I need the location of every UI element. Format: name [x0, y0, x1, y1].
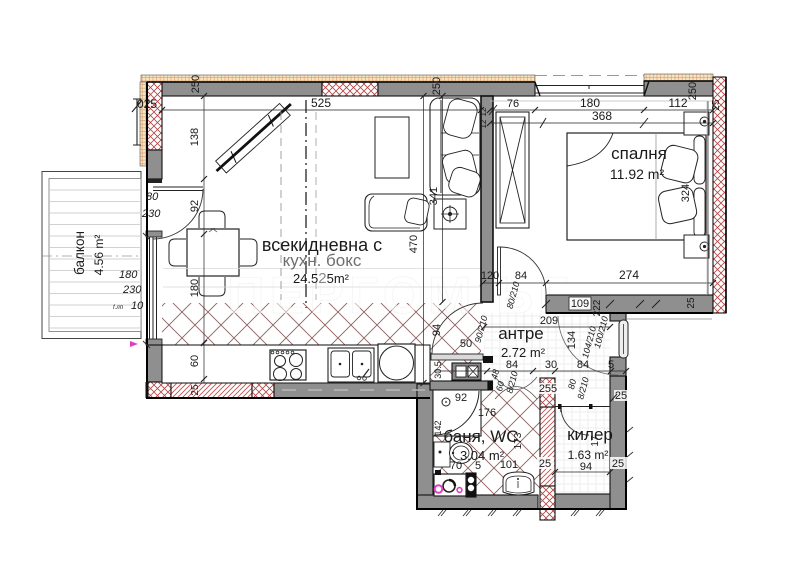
svg-text:180: 180: [189, 279, 201, 297]
svg-text:250: 250: [190, 75, 202, 93]
svg-text:368: 368: [592, 109, 612, 123]
svg-text:173: 173: [513, 432, 524, 449]
svg-text:230: 230: [122, 284, 142, 296]
svg-text:92: 92: [189, 200, 201, 212]
svg-text:25: 25: [615, 390, 627, 402]
svg-text:12: 12: [479, 107, 488, 116]
svg-text:25: 25: [190, 384, 201, 396]
svg-text:180: 180: [580, 96, 600, 110]
svg-text:250: 250: [431, 77, 443, 95]
svg-text:24.525m²: 24.525m²: [293, 270, 350, 287]
svg-text:142: 142: [433, 420, 443, 435]
svg-text:84: 84: [577, 359, 589, 371]
svg-text:70: 70: [450, 460, 462, 472]
svg-text:180: 180: [119, 269, 138, 281]
svg-text:120: 120: [481, 270, 499, 282]
svg-text:25: 25: [539, 458, 551, 470]
svg-text:5: 5: [608, 359, 614, 371]
svg-text:60: 60: [189, 355, 201, 367]
svg-text:25: 25: [711, 99, 722, 111]
svg-text:1.63 m²: 1.63 m²: [568, 448, 609, 462]
svg-text:112: 112: [668, 96, 687, 110]
svg-text:274: 274: [619, 268, 639, 282]
svg-text:101: 101: [500, 459, 518, 471]
svg-text:2.72 m²: 2.72 m²: [501, 345, 546, 360]
svg-text:антре: антре: [498, 324, 544, 343]
svg-text:134: 134: [566, 331, 578, 349]
svg-text:94: 94: [431, 324, 443, 336]
svg-text:255: 255: [539, 383, 557, 395]
svg-text:222: 222: [592, 299, 603, 316]
svg-text:80: 80: [146, 191, 159, 203]
svg-text:кухн. бокс: кухн. бокс: [283, 251, 362, 270]
svg-text:12: 12: [479, 119, 488, 128]
svg-text:324: 324: [680, 184, 692, 202]
svg-text:3.04 m²: 3.04 m²: [460, 448, 505, 463]
svg-text:спалня: спалня: [611, 144, 667, 163]
svg-text:470: 470: [408, 235, 420, 253]
svg-text:025: 025: [137, 97, 157, 111]
svg-text:50: 50: [460, 338, 472, 350]
svg-text:11.92 m²: 11.92 m²: [610, 166, 665, 182]
svg-text:10: 10: [131, 300, 144, 312]
svg-text:баня, WC: баня, WC: [443, 427, 518, 446]
svg-text:84: 84: [506, 359, 518, 371]
svg-text:341: 341: [428, 187, 440, 205]
svg-text:5: 5: [475, 460, 481, 472]
svg-text:209: 209: [540, 315, 558, 327]
svg-text:109: 109: [571, 298, 589, 310]
svg-text:92: 92: [455, 392, 467, 404]
svg-text:25: 25: [612, 458, 624, 470]
svg-text:балкон: балкон: [72, 231, 87, 275]
svg-text:94: 94: [580, 461, 592, 473]
svg-text:525: 525: [311, 96, 331, 110]
svg-text:76: 76: [507, 98, 519, 110]
svg-text:176: 176: [478, 407, 496, 419]
svg-text:f.лп: f.лп: [113, 305, 124, 311]
svg-text:17: 17: [590, 435, 601, 447]
svg-text:30.5: 30.5: [433, 361, 443, 379]
svg-text:30: 30: [545, 359, 557, 371]
svg-text:230: 230: [141, 208, 161, 220]
svg-text:138: 138: [189, 128, 201, 146]
svg-text:250: 250: [687, 82, 699, 100]
svg-text:4.56 m²: 4.56 m²: [92, 235, 106, 276]
svg-text:25: 25: [686, 297, 697, 309]
svg-text:84: 84: [515, 270, 527, 282]
